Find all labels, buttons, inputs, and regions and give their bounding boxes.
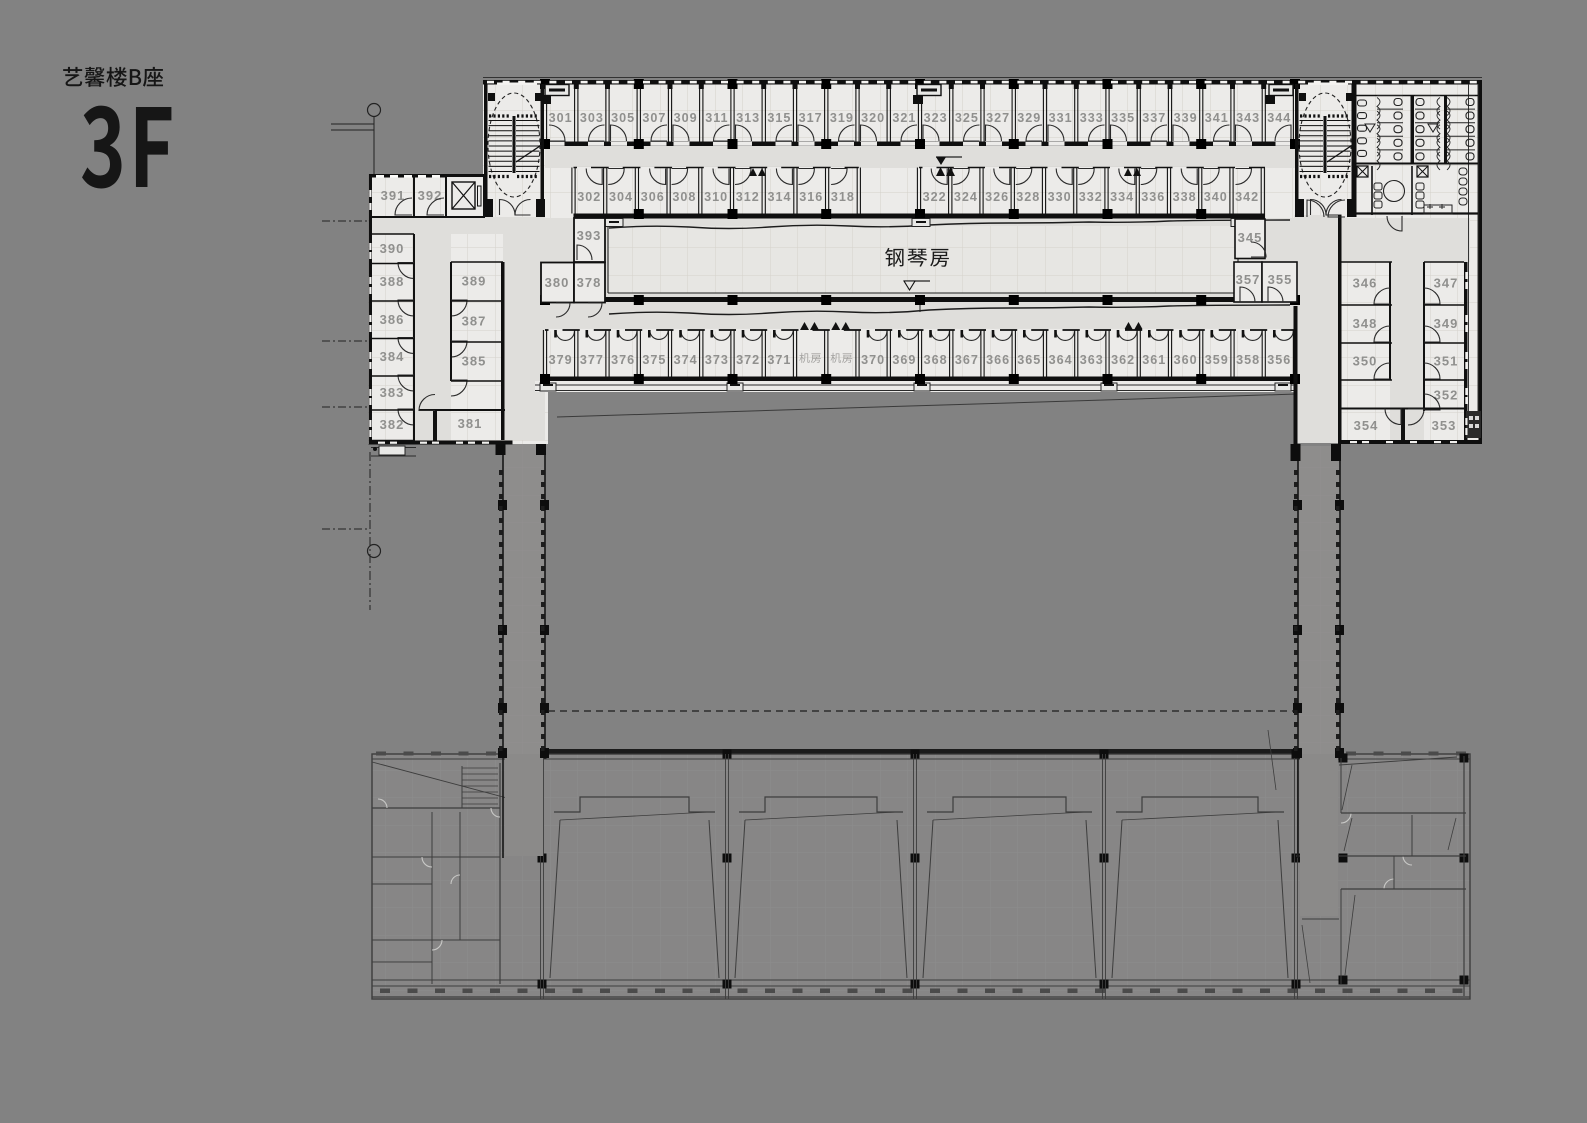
svg-text:306: 306 — [641, 190, 665, 204]
svg-text:380: 380 — [545, 275, 570, 290]
svg-text:303: 303 — [580, 111, 604, 125]
svg-text:326: 326 — [985, 190, 1009, 204]
svg-text:383: 383 — [380, 385, 405, 400]
svg-text:366: 366 — [986, 353, 1010, 367]
svg-text:309: 309 — [674, 111, 698, 125]
svg-text:342: 342 — [1235, 190, 1259, 204]
svg-text:327: 327 — [986, 111, 1010, 125]
svg-text:385: 385 — [462, 354, 487, 369]
svg-text:338: 338 — [1173, 190, 1197, 204]
svg-text:348: 348 — [1353, 316, 1378, 331]
svg-text:308: 308 — [672, 190, 696, 204]
svg-text:336: 336 — [1141, 190, 1165, 204]
svg-text:328: 328 — [1016, 190, 1040, 204]
svg-text:349: 349 — [1434, 316, 1459, 331]
svg-text:341: 341 — [1205, 111, 1229, 125]
svg-text:363: 363 — [1080, 353, 1104, 367]
svg-text:324: 324 — [954, 190, 978, 204]
svg-text:302: 302 — [577, 190, 601, 204]
svg-text:373: 373 — [705, 353, 729, 367]
svg-text:350: 350 — [1353, 354, 1378, 369]
svg-text:310: 310 — [704, 190, 728, 204]
svg-text:340: 340 — [1204, 190, 1228, 204]
svg-text:318: 318 — [831, 190, 855, 204]
svg-text:337: 337 — [1142, 111, 1166, 125]
svg-text:307: 307 — [642, 111, 666, 125]
svg-text:312: 312 — [736, 190, 760, 204]
svg-text:356: 356 — [1267, 353, 1291, 367]
svg-text:361: 361 — [1142, 353, 1166, 367]
svg-text:387: 387 — [462, 314, 487, 329]
svg-text:313: 313 — [736, 111, 760, 125]
svg-text:368: 368 — [924, 353, 948, 367]
svg-text:335: 335 — [1111, 111, 1135, 125]
svg-text:393: 393 — [577, 228, 602, 243]
svg-text:390: 390 — [380, 241, 405, 256]
svg-text:386: 386 — [380, 312, 405, 327]
svg-text:374: 374 — [674, 353, 698, 367]
svg-text:332: 332 — [1079, 190, 1103, 204]
svg-text:317: 317 — [799, 111, 823, 125]
svg-text:379: 379 — [549, 353, 573, 367]
svg-text:304: 304 — [609, 190, 633, 204]
svg-text:301: 301 — [549, 111, 573, 125]
svg-text:382: 382 — [380, 417, 405, 432]
svg-text:358: 358 — [1236, 353, 1260, 367]
svg-text:391: 391 — [381, 188, 406, 203]
svg-text:322: 322 — [923, 190, 947, 204]
svg-text:381: 381 — [458, 416, 483, 431]
svg-text:345: 345 — [1238, 230, 1263, 245]
svg-text:376: 376 — [611, 353, 635, 367]
svg-text:347: 347 — [1434, 276, 1459, 291]
svg-text:362: 362 — [1111, 353, 1135, 367]
svg-text:377: 377 — [580, 353, 604, 367]
svg-text:351: 351 — [1434, 354, 1459, 369]
svg-text:370: 370 — [861, 353, 885, 367]
svg-text:305: 305 — [611, 111, 635, 125]
svg-text:320: 320 — [861, 111, 885, 125]
svg-text:321: 321 — [892, 111, 916, 125]
svg-text:311: 311 — [705, 111, 728, 125]
svg-text:355: 355 — [1268, 272, 1293, 287]
svg-text:354: 354 — [1354, 418, 1379, 433]
svg-text:375: 375 — [642, 353, 666, 367]
svg-text:360: 360 — [1174, 353, 1198, 367]
svg-text:372: 372 — [736, 353, 760, 367]
svg-text:365: 365 — [1017, 353, 1041, 367]
svg-text:378: 378 — [577, 275, 602, 290]
svg-text:353: 353 — [1432, 418, 1457, 433]
svg-text:367: 367 — [955, 353, 979, 367]
svg-text:339: 339 — [1174, 111, 1198, 125]
svg-text:346: 346 — [1353, 276, 1378, 291]
svg-text:392: 392 — [418, 188, 443, 203]
svg-text:364: 364 — [1049, 353, 1073, 367]
svg-text:329: 329 — [1017, 111, 1041, 125]
svg-text:357: 357 — [1236, 272, 1261, 287]
svg-text:330: 330 — [1048, 190, 1072, 204]
svg-text:334: 334 — [1110, 190, 1134, 204]
svg-text:314: 314 — [767, 190, 791, 204]
svg-text:325: 325 — [955, 111, 979, 125]
svg-text:343: 343 — [1236, 111, 1260, 125]
svg-text:323: 323 — [924, 111, 948, 125]
svg-text:319: 319 — [830, 111, 854, 125]
svg-text:331: 331 — [1049, 111, 1073, 125]
svg-text:384: 384 — [380, 349, 405, 364]
svg-text:344: 344 — [1267, 111, 1291, 125]
svg-text:316: 316 — [799, 190, 823, 204]
svg-text:359: 359 — [1205, 353, 1229, 367]
svg-text:315: 315 — [767, 111, 791, 125]
svg-text:389: 389 — [462, 274, 487, 289]
svg-text:388: 388 — [380, 274, 405, 289]
svg-text:369: 369 — [892, 353, 916, 367]
svg-text:333: 333 — [1080, 111, 1104, 125]
svg-text:371: 371 — [767, 353, 791, 367]
